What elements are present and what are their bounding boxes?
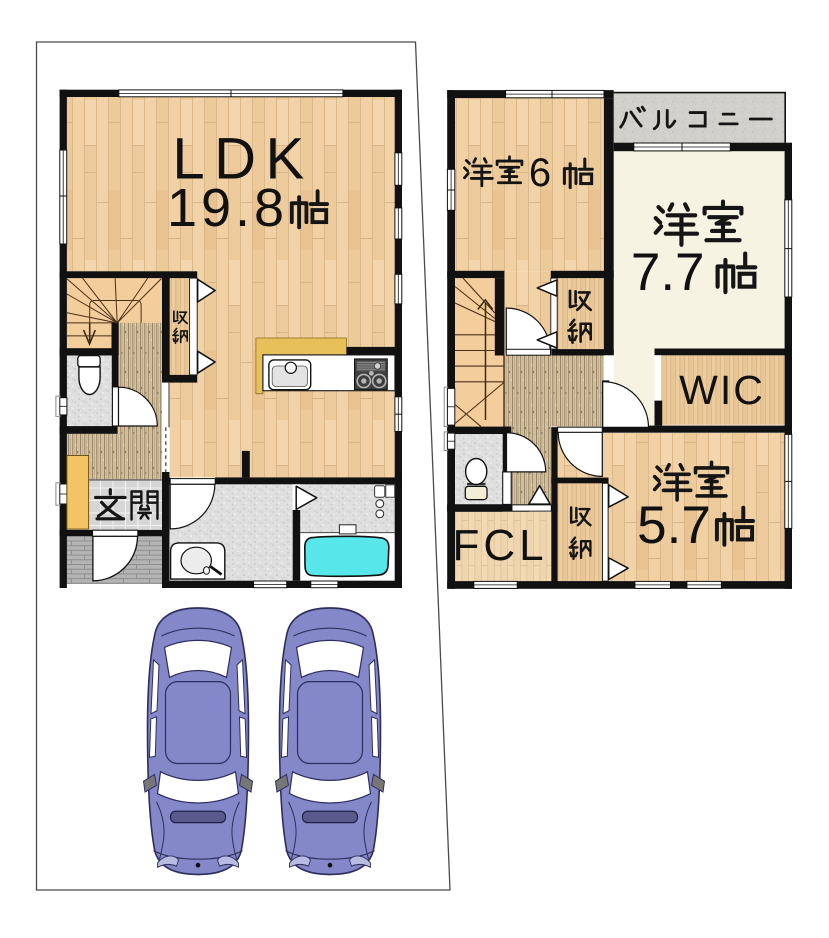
svg-text:19.8: 19.8 xyxy=(167,178,288,238)
svg-text:FCL: FCL xyxy=(452,521,547,570)
svg-text:7.7: 7.7 xyxy=(631,243,705,302)
svg-text:WIC: WIC xyxy=(679,367,765,413)
svg-text:6: 6 xyxy=(529,151,551,195)
svg-text:5.7: 5.7 xyxy=(637,496,711,555)
